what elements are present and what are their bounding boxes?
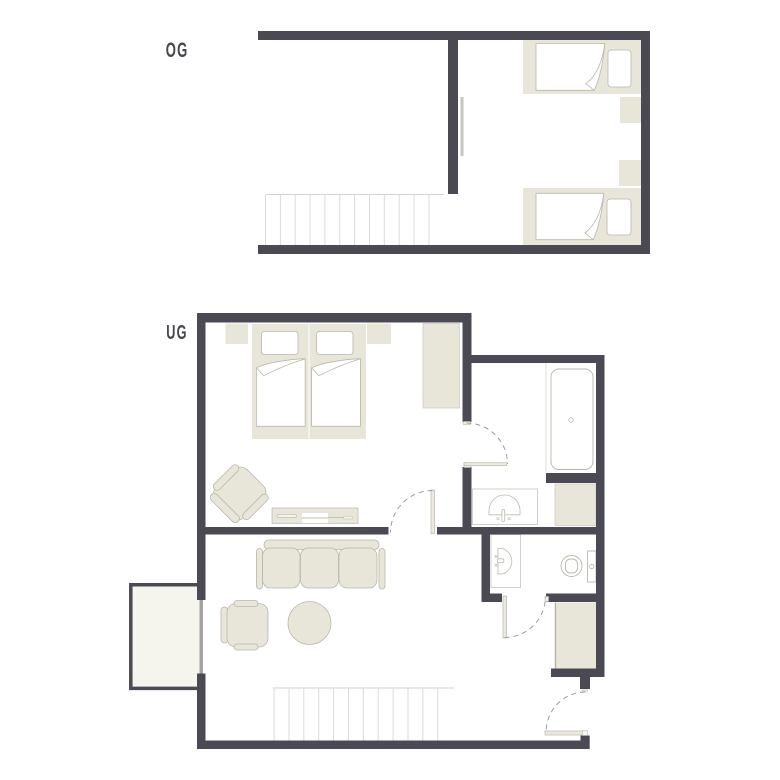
svg-text:UG: UG — [166, 321, 188, 344]
svg-text:OG: OG — [166, 38, 189, 62]
